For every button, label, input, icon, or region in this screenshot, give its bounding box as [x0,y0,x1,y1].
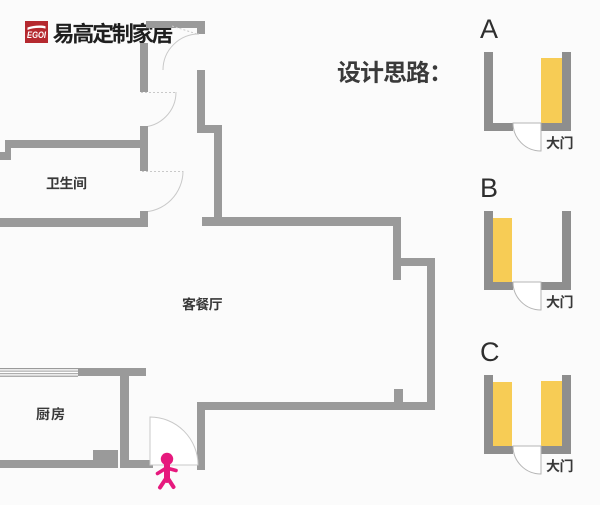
svg-text:A: A [480,14,498,44]
svg-text:EGOI: EGOI [27,30,46,40]
svg-text:B: B [480,173,498,203]
svg-text:C: C [480,337,500,367]
